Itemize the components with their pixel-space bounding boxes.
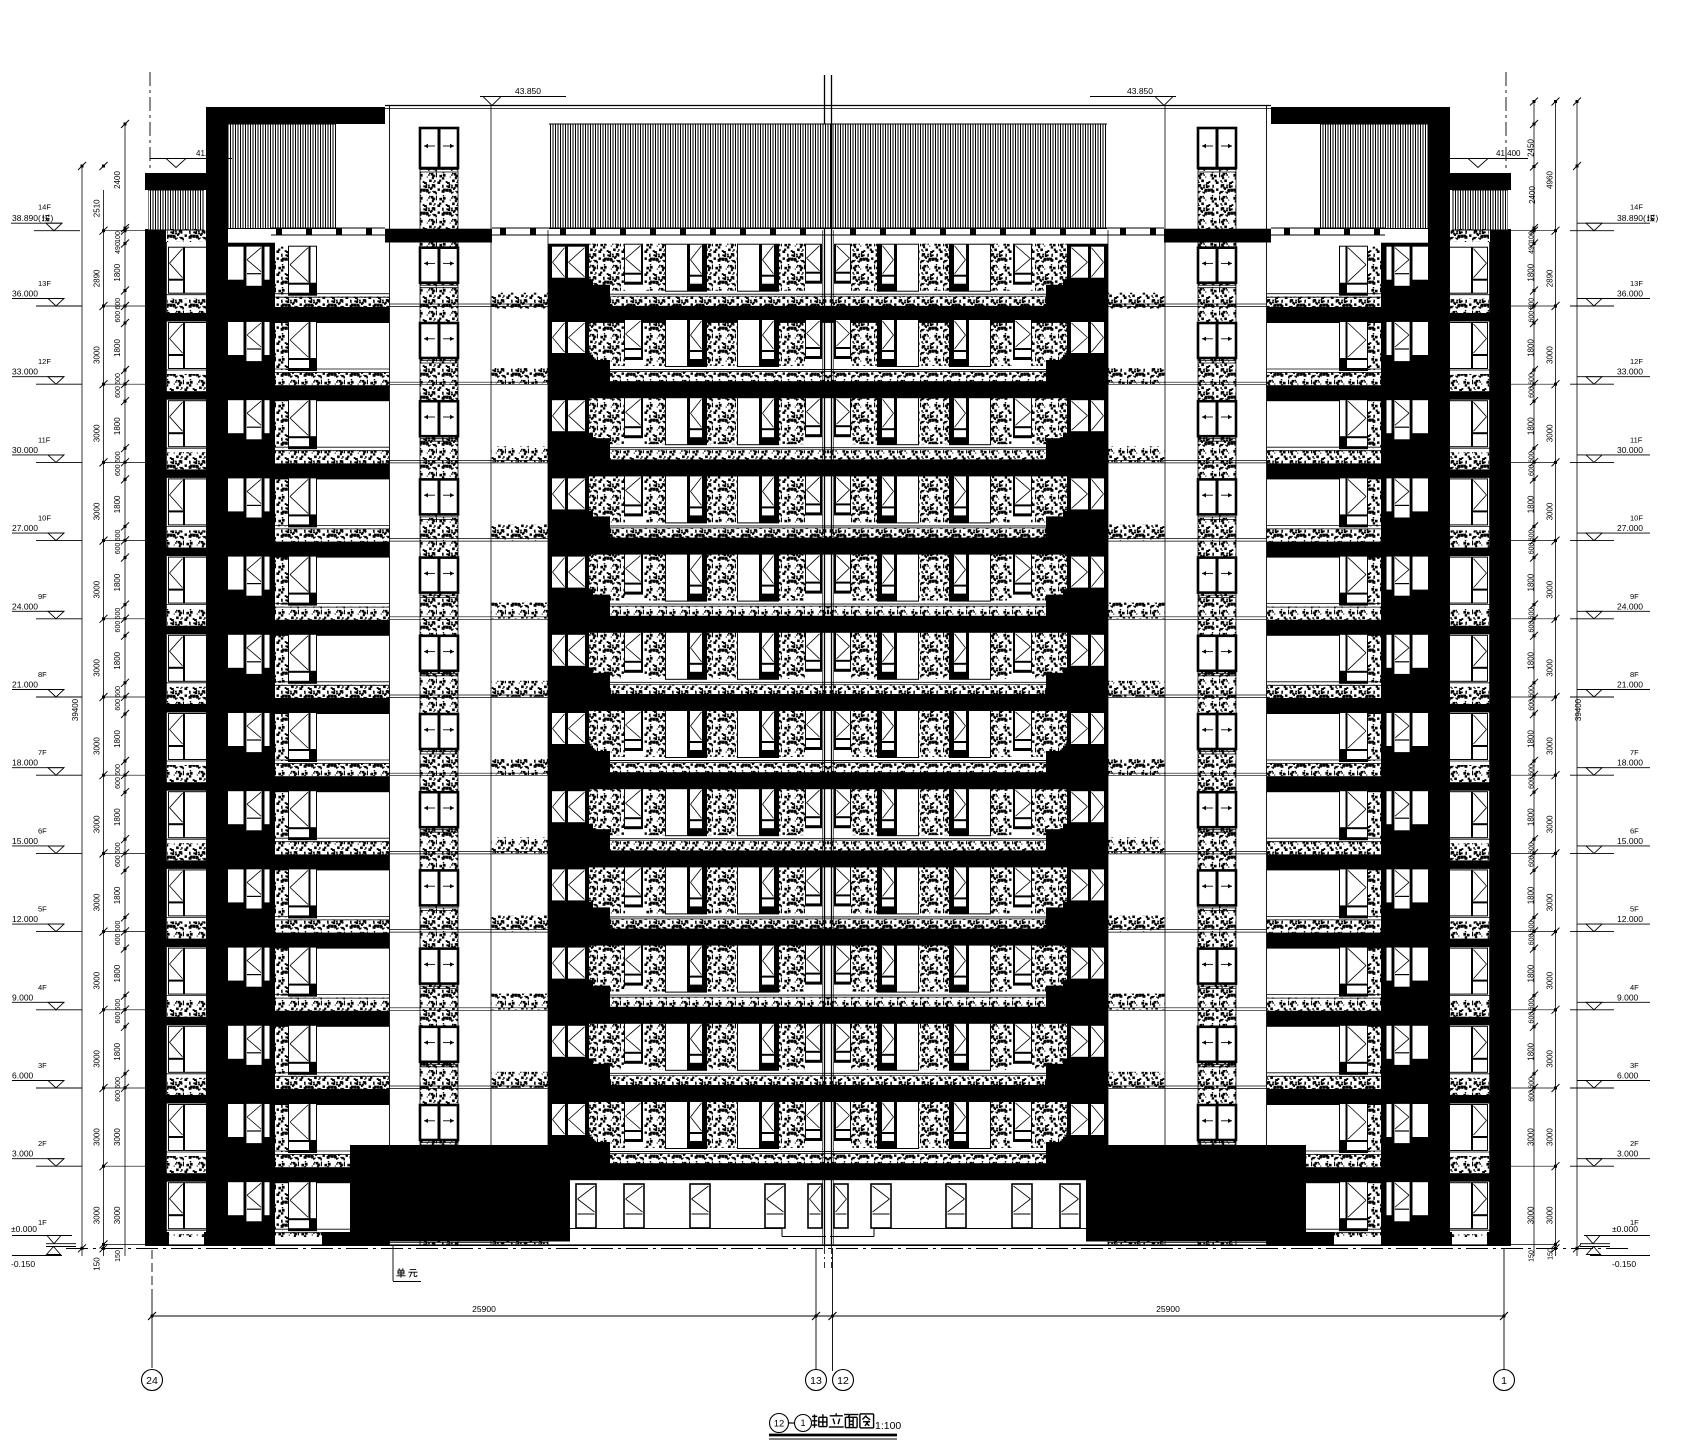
svg-text:600: 600: [1529, 842, 1536, 854]
svg-text:1800: 1800: [1527, 339, 1536, 357]
svg-text:3F: 3F: [1630, 1061, 1639, 1070]
svg-text:3000: 3000: [1527, 1128, 1536, 1146]
svg-text:11F: 11F: [1630, 435, 1643, 444]
svg-text:3000: 3000: [1546, 424, 1555, 442]
svg-text:1:100: 1:100: [875, 1420, 901, 1432]
svg-text:3000: 3000: [1546, 1206, 1555, 1224]
svg-text:7F: 7F: [1630, 748, 1639, 757]
svg-text:600: 600: [1529, 1090, 1536, 1102]
svg-text:27.000: 27.000: [1617, 523, 1643, 533]
svg-text:8F: 8F: [1630, 670, 1639, 679]
svg-text:600: 600: [115, 777, 122, 789]
svg-text:10F: 10F: [38, 514, 51, 523]
svg-text:600: 600: [1529, 386, 1536, 398]
svg-text:18.000: 18.000: [12, 758, 38, 768]
svg-text:600: 600: [115, 386, 122, 398]
svg-text:43.850: 43.850: [1127, 86, 1153, 96]
svg-text:600: 600: [1529, 777, 1536, 789]
svg-text:600: 600: [115, 764, 122, 776]
svg-text:1800: 1800: [113, 730, 122, 748]
svg-text:1800: 1800: [113, 1042, 122, 1060]
svg-text:1800: 1800: [1527, 573, 1536, 591]
svg-text:38.890(: 38.890(: [1617, 213, 1646, 223]
svg-text:600: 600: [1529, 608, 1536, 620]
svg-text:600: 600: [1529, 699, 1536, 711]
svg-text:1800: 1800: [1527, 886, 1536, 904]
svg-text:1800: 1800: [113, 417, 122, 435]
svg-text:600: 600: [1529, 464, 1536, 476]
svg-text:3000: 3000: [93, 815, 102, 833]
svg-text:7F: 7F: [38, 748, 47, 757]
svg-text:600: 600: [115, 920, 122, 932]
svg-text:1800: 1800: [113, 808, 122, 826]
svg-text:1800: 1800: [113, 964, 122, 982]
svg-text:8F: 8F: [38, 670, 47, 679]
svg-text:4F: 4F: [1630, 983, 1639, 992]
svg-text:3000: 3000: [93, 1206, 102, 1224]
svg-text:600: 600: [115, 621, 122, 633]
svg-text:25900: 25900: [472, 1304, 496, 1314]
svg-text:3000: 3000: [93, 580, 102, 598]
svg-text:1: 1: [800, 1418, 805, 1428]
svg-text:3000: 3000: [1527, 1206, 1536, 1224]
svg-text:2F: 2F: [38, 1139, 47, 1148]
svg-text:39400: 39400: [1574, 698, 1583, 721]
svg-text:600: 600: [115, 999, 122, 1011]
svg-text:9.000: 9.000: [1617, 992, 1639, 1002]
svg-text:-0.150: -0.150: [11, 1259, 35, 1269]
svg-text:3.000: 3.000: [1617, 1149, 1639, 1159]
svg-text:36.000: 36.000: [12, 289, 38, 299]
svg-text:600: 600: [1529, 920, 1536, 932]
svg-text:600: 600: [1529, 933, 1536, 945]
svg-text:±0.000: ±0.000: [11, 1224, 37, 1234]
svg-text:150: 150: [1529, 1250, 1536, 1262]
svg-text:36.000: 36.000: [1617, 289, 1643, 299]
svg-text:3000: 3000: [1546, 1049, 1555, 1067]
svg-text:2400: 2400: [1528, 186, 1537, 204]
svg-text:25900: 25900: [1156, 1304, 1180, 1314]
svg-text:1800: 1800: [1527, 651, 1536, 669]
svg-text:2400: 2400: [113, 171, 122, 189]
svg-text:5F: 5F: [1630, 905, 1639, 914]
svg-text:3000: 3000: [93, 1049, 102, 1067]
svg-text:24.000: 24.000: [1617, 601, 1643, 611]
svg-text:12F: 12F: [1630, 357, 1643, 366]
svg-text:600: 600: [115, 855, 122, 867]
svg-text:3.000: 3.000: [12, 1149, 34, 1159]
svg-text:600: 600: [1529, 451, 1536, 463]
svg-text:12F: 12F: [38, 357, 51, 366]
svg-text:3000: 3000: [1546, 502, 1555, 520]
svg-text:): ): [1656, 213, 1659, 223]
svg-text:600: 600: [1529, 373, 1536, 385]
svg-text:1800: 1800: [113, 573, 122, 591]
svg-text:3000: 3000: [93, 502, 102, 520]
svg-text:1800: 1800: [1527, 730, 1536, 748]
svg-text:38.890(: 38.890(: [12, 213, 41, 223]
svg-text:15.000: 15.000: [1617, 836, 1643, 846]
svg-text:6F: 6F: [38, 826, 47, 835]
svg-text:600: 600: [1529, 311, 1536, 323]
svg-text:1800: 1800: [1527, 1042, 1536, 1060]
svg-text:1800: 1800: [1527, 417, 1536, 435]
svg-text:600: 600: [1529, 764, 1536, 776]
svg-text:100: 100: [1529, 231, 1536, 243]
svg-text:150: 150: [1548, 1248, 1555, 1260]
svg-text:1800: 1800: [1527, 495, 1536, 513]
svg-text:3000: 3000: [93, 658, 102, 676]
svg-text:41.400: 41.400: [1496, 149, 1521, 158]
svg-text:600: 600: [115, 451, 122, 463]
svg-text:2890: 2890: [93, 269, 102, 287]
svg-text:1800: 1800: [113, 263, 122, 281]
svg-text:1F: 1F: [38, 1218, 47, 1227]
svg-text:600: 600: [1529, 1077, 1536, 1089]
svg-text:3000: 3000: [1546, 346, 1555, 364]
svg-text:600: 600: [115, 1077, 122, 1089]
svg-text:6.000: 6.000: [12, 1071, 34, 1081]
svg-text:600: 600: [115, 699, 122, 711]
svg-text:3000: 3000: [1546, 737, 1555, 755]
svg-text:3000: 3000: [93, 893, 102, 911]
svg-text:12.000: 12.000: [1617, 914, 1643, 924]
svg-text:12: 12: [837, 1375, 849, 1387]
svg-text:3000: 3000: [93, 1128, 102, 1146]
svg-text:4960: 4960: [1546, 171, 1555, 189]
svg-text:3000: 3000: [1546, 658, 1555, 676]
svg-text:9F: 9F: [38, 592, 47, 601]
svg-text:1800: 1800: [1527, 964, 1536, 982]
svg-text:600: 600: [115, 529, 122, 541]
svg-text:6.000: 6.000: [1617, 1071, 1639, 1081]
svg-text:600: 600: [115, 1012, 122, 1024]
svg-text:24.000: 24.000: [12, 601, 38, 611]
svg-text:600: 600: [115, 373, 122, 385]
svg-text:2510: 2510: [93, 199, 102, 217]
svg-text:15.000: 15.000: [12, 836, 38, 846]
svg-text:1800: 1800: [113, 886, 122, 904]
svg-text:490: 490: [1529, 242, 1536, 254]
svg-text:13F: 13F: [38, 279, 51, 288]
svg-text:3000: 3000: [93, 424, 102, 442]
svg-text:1800: 1800: [1527, 263, 1536, 281]
svg-text:41.400: 41.400: [196, 149, 221, 158]
svg-text:33.000: 33.000: [1617, 367, 1643, 377]
svg-text:9F: 9F: [1630, 592, 1639, 601]
svg-text:1800: 1800: [113, 339, 122, 357]
svg-text:1800: 1800: [1527, 808, 1536, 826]
svg-text:150: 150: [115, 1250, 122, 1262]
svg-text:2450: 2450: [1527, 139, 1536, 157]
svg-text:3000: 3000: [1546, 1128, 1555, 1146]
svg-text:600: 600: [1529, 686, 1536, 698]
svg-text:600: 600: [115, 298, 122, 310]
svg-text:3000: 3000: [1546, 971, 1555, 989]
svg-text:600: 600: [1529, 529, 1536, 541]
svg-text:150: 150: [93, 1257, 102, 1271]
svg-text:490: 490: [115, 242, 122, 254]
svg-text:10F: 10F: [1630, 514, 1643, 523]
svg-text:2F: 2F: [1630, 1139, 1639, 1148]
svg-text:2890: 2890: [1546, 269, 1555, 287]
svg-text:-0.150: -0.150: [1612, 1259, 1636, 1269]
svg-text:600: 600: [1529, 542, 1536, 554]
svg-text:600: 600: [115, 933, 122, 945]
svg-text:39400: 39400: [71, 698, 80, 721]
svg-text:600: 600: [115, 311, 122, 323]
svg-text:24: 24: [146, 1375, 158, 1387]
svg-text:14F: 14F: [1630, 203, 1643, 212]
svg-text:3000: 3000: [1546, 893, 1555, 911]
svg-text:3000: 3000: [93, 346, 102, 364]
svg-text:600: 600: [115, 464, 122, 476]
svg-text:600: 600: [115, 1090, 122, 1102]
svg-text:13F: 13F: [1630, 279, 1643, 288]
svg-text:18.000: 18.000: [1617, 758, 1643, 768]
svg-text:13: 13: [810, 1375, 822, 1387]
svg-text:600: 600: [1529, 999, 1536, 1011]
svg-text:600: 600: [115, 542, 122, 554]
svg-text:600: 600: [1529, 1012, 1536, 1024]
svg-text:1800: 1800: [113, 495, 122, 513]
svg-text:12: 12: [774, 1418, 785, 1429]
svg-text:3000: 3000: [93, 737, 102, 755]
svg-text:3000: 3000: [1546, 580, 1555, 598]
svg-text:±0.000: ±0.000: [1612, 1224, 1638, 1234]
svg-text:14F: 14F: [38, 203, 51, 212]
svg-text:600: 600: [115, 842, 122, 854]
svg-text:6F: 6F: [1630, 826, 1639, 835]
svg-text:3000: 3000: [1546, 815, 1555, 833]
svg-text:600: 600: [1529, 855, 1536, 867]
svg-text:3000: 3000: [93, 971, 102, 989]
svg-text:3F: 3F: [38, 1061, 47, 1070]
svg-text:27.000: 27.000: [12, 523, 38, 533]
svg-text:30.000: 30.000: [1617, 445, 1643, 455]
svg-text:): ): [51, 213, 54, 223]
svg-text:5F: 5F: [38, 905, 47, 914]
svg-text:30.000: 30.000: [12, 445, 38, 455]
svg-text:600: 600: [1529, 621, 1536, 633]
svg-text:100: 100: [115, 231, 122, 243]
svg-text:1: 1: [1501, 1375, 1507, 1387]
svg-text:43.850: 43.850: [515, 86, 541, 96]
svg-text:11F: 11F: [38, 435, 51, 444]
svg-text:33.000: 33.000: [12, 367, 38, 377]
svg-text:12.000: 12.000: [12, 914, 38, 924]
svg-text:3000: 3000: [113, 1128, 122, 1146]
svg-text:9.000: 9.000: [12, 992, 34, 1002]
svg-text:600: 600: [115, 686, 122, 698]
svg-text:3000: 3000: [113, 1206, 122, 1224]
svg-text:1800: 1800: [113, 651, 122, 669]
svg-text:600: 600: [115, 608, 122, 620]
svg-text:21.000: 21.000: [12, 680, 38, 690]
svg-text:4F: 4F: [38, 983, 47, 992]
svg-text:600: 600: [1529, 298, 1536, 310]
svg-text:21.000: 21.000: [1617, 680, 1643, 690]
